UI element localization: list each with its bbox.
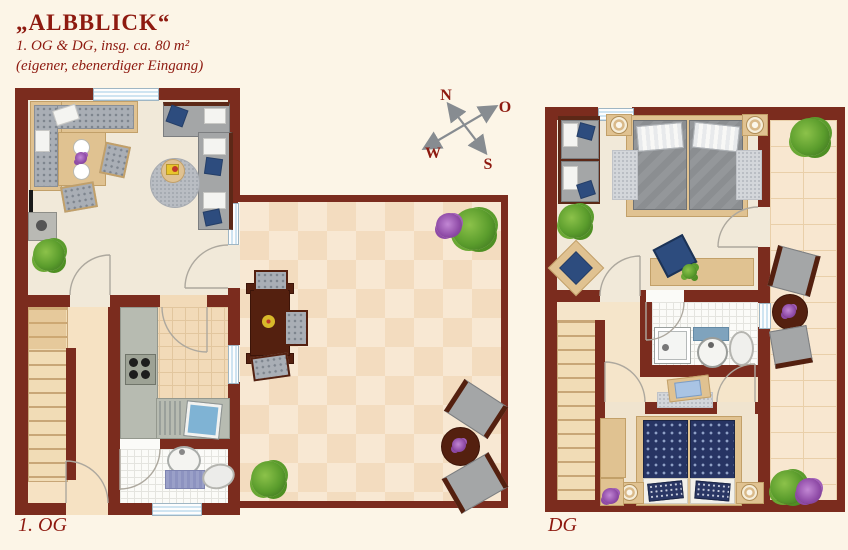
drainboard: [159, 401, 183, 435]
sofa-pillow-2: [204, 108, 226, 124]
compass-axis-we: [425, 107, 495, 148]
dg-door-gap-bath: [646, 290, 684, 302]
sofa-pillow-4: [204, 157, 223, 176]
terrace-chair-bottom: [251, 353, 291, 382]
flower-table-plant: [602, 488, 619, 504]
dg-stairs: [557, 320, 597, 502]
page-title: „ALBBLICK“: [16, 10, 170, 36]
lamp-right: [746, 116, 764, 134]
floor-label-dg: DG: [548, 514, 577, 537]
terrace-table-flowers: [262, 315, 275, 328]
dg-wall-left: [545, 107, 557, 512]
dining-table-flowers: [75, 152, 87, 164]
og-wall-hall-kitchen: [108, 295, 120, 503]
og-plant-left: [33, 239, 65, 271]
page-note: (eigener, ebenerdiger Eingang): [16, 58, 203, 75]
burner-1: [129, 358, 138, 367]
dg-door-gap-bed2-right: [717, 402, 755, 414]
compass-n: N: [440, 87, 452, 104]
bath-sink-faucet: [708, 342, 714, 348]
og-wall-sep-1: [15, 295, 70, 307]
og-window-kitchen: [228, 345, 239, 384]
og-wall-stair-divider: [66, 348, 76, 480]
bed3-pillow: [647, 480, 684, 502]
terrace-plant-top-purple: [436, 213, 462, 238]
balcony-armchair: [769, 325, 813, 369]
dg-wall-sep2-r: [755, 402, 758, 414]
shower-drain: [662, 344, 669, 351]
og-wall-kitchen-right-a: [228, 307, 240, 345]
og-door-gap-living-terrace: [228, 245, 240, 288]
bed2-pillow: [692, 122, 740, 153]
terrace-chair-top: [254, 270, 288, 291]
dg-door-gap-balcony: [758, 207, 770, 247]
compass-s: S: [484, 156, 493, 173]
side-table-dot: [172, 166, 178, 172]
floor-label-og: 1. OG: [18, 514, 67, 537]
bedside-rug-right: [736, 150, 762, 200]
og-wall-bottom-2: [108, 503, 152, 515]
radiator: [29, 190, 33, 212]
wardrobe: [600, 418, 626, 478]
bath-toilet: [729, 331, 754, 366]
lamp-br: [741, 484, 758, 501]
dressing-mirror: [674, 380, 702, 399]
og-door-gap-living-hall: [70, 295, 110, 307]
dg-window-bath: [759, 303, 771, 329]
compass-rose: N O W S: [406, 82, 534, 182]
shower: [654, 327, 691, 364]
burner-3: [129, 370, 138, 379]
kitchen-sink: [184, 401, 221, 438]
compass-o: O: [499, 99, 511, 116]
terrace-plant-bottom: [251, 461, 286, 497]
balcony-plant-top: [790, 118, 830, 156]
compass-axis-ns: [449, 105, 485, 152]
og-door-gap-entrance: [66, 503, 108, 515]
og-door-gap-kitchen: [160, 295, 207, 307]
dg-wall-sep1-c: [684, 290, 758, 302]
balcony-table-flowers: [782, 304, 796, 318]
bed1-pillow: [636, 122, 684, 152]
dg-balcony-divider-c: [758, 327, 770, 500]
terrace-chair-right: [284, 310, 308, 346]
og-terrace-wall-top: [238, 195, 508, 202]
bed3-duvet: [643, 420, 688, 480]
lamp-left: [610, 116, 628, 134]
og-window-wc: [152, 503, 202, 516]
wc-sink-faucet: [179, 449, 185, 455]
dg-plant-1: [558, 204, 592, 238]
burner-4: [141, 370, 150, 379]
og-stairs-winders: [28, 307, 66, 349]
plate-2: [73, 163, 90, 180]
dg-armchair-cushion: [559, 251, 593, 285]
dg-balcony-divider-b: [758, 247, 770, 303]
burner-2: [141, 358, 150, 367]
bedside-rug-left: [612, 150, 638, 200]
bed4-pillow: [694, 481, 730, 502]
og-terrace-wall-right: [501, 195, 508, 508]
stove-burner: [36, 220, 47, 231]
dg-door-gap-bedroom1: [600, 290, 640, 302]
balcony-plant-bottom-purple: [796, 478, 822, 504]
terrace-round-table-flowers: [452, 438, 466, 452]
compass-w: W: [425, 145, 441, 162]
bench-pillow-2: [35, 130, 50, 152]
page-subtitle: 1. OG & DG, insg. ca. 80 m²: [16, 38, 189, 55]
floor-plan-canvas: „ALBBLICK“ 1. OG & DG, insg. ca. 80 m² (…: [0, 0, 848, 550]
og-window-top: [93, 88, 159, 101]
wc-mat: [165, 470, 205, 489]
sofa-pillow-3: [203, 138, 226, 155]
desk-plant: [682, 264, 697, 279]
og-wall-sep-3: [207, 295, 240, 307]
sofa-pillow-5: [203, 192, 226, 209]
dg-door-gap-bed2-left: [605, 402, 645, 414]
dg-wall-right: [837, 107, 845, 512]
bed4-duvet: [690, 420, 735, 480]
